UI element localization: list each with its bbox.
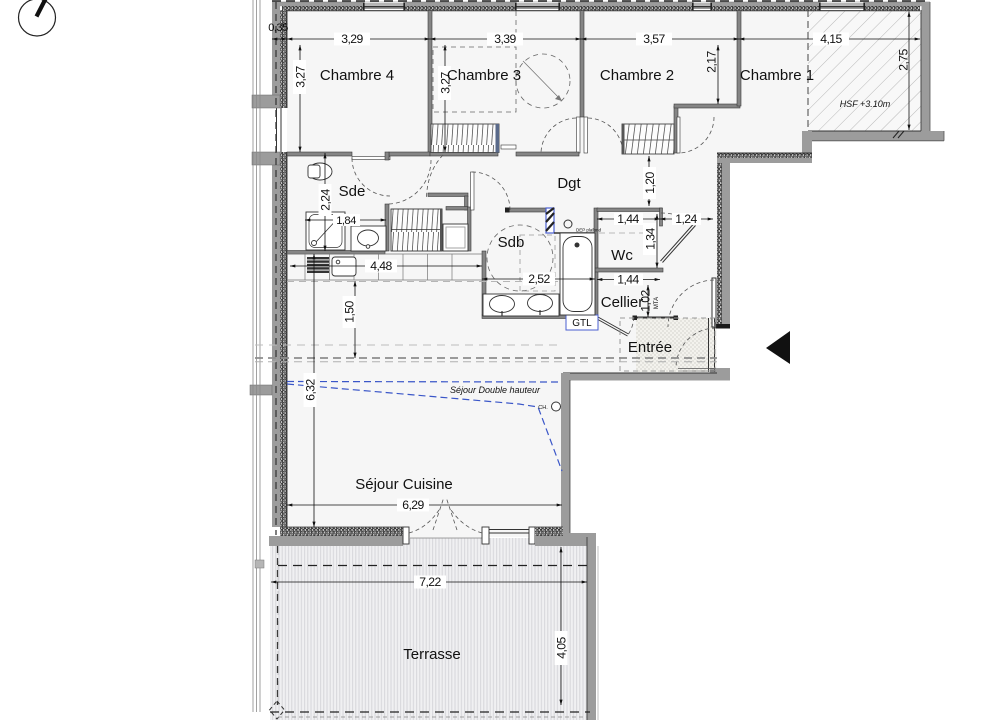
svg-text:4,15: 4,15 — [820, 32, 842, 46]
svg-text:Sde: Sde — [339, 183, 366, 200]
svg-text:Sdb: Sdb — [498, 234, 525, 251]
svg-text:Chambre 2: Chambre 2 — [600, 67, 674, 84]
svg-text:4,05: 4,05 — [555, 636, 569, 658]
svg-text:1,50: 1,50 — [343, 300, 357, 322]
svg-text:Chambre 1: Chambre 1 — [740, 67, 814, 84]
svg-text:2,24: 2,24 — [319, 188, 333, 210]
svg-text:2,75: 2,75 — [897, 48, 911, 70]
svg-text:3,57: 3,57 — [643, 32, 665, 46]
svg-text:3,27: 3,27 — [294, 65, 308, 87]
svg-text:1,84: 1,84 — [336, 215, 356, 227]
svg-text:2,17: 2,17 — [705, 50, 719, 72]
svg-text:MTA: MTA — [654, 297, 660, 309]
svg-text:Wc: Wc — [611, 247, 633, 264]
svg-text:6,32: 6,32 — [304, 378, 318, 400]
svg-text:DEP plafond: DEP plafond — [576, 228, 602, 233]
svg-text:HSF +3.10m: HSF +3.10m — [840, 99, 891, 109]
svg-text:3,29: 3,29 — [341, 32, 363, 46]
svg-text:Chambre 3: Chambre 3 — [447, 67, 521, 84]
svg-text:2,52: 2,52 — [528, 272, 550, 286]
svg-text:6,29: 6,29 — [402, 498, 424, 512]
svg-text:Séjour Cuisine: Séjour Cuisine — [355, 476, 453, 493]
svg-text:1,20: 1,20 — [643, 171, 657, 193]
svg-text:CH.: CH. — [538, 405, 548, 411]
svg-text:Séjour Double hauteur: Séjour Double hauteur — [450, 385, 541, 395]
svg-text:7,22: 7,22 — [419, 575, 441, 589]
svg-text:1,24: 1,24 — [675, 212, 697, 226]
svg-text:3,39: 3,39 — [494, 32, 516, 46]
svg-text:Cellier: Cellier — [601, 294, 644, 311]
svg-text:0,35: 0,35 — [268, 22, 288, 34]
svg-text:1,44: 1,44 — [617, 212, 639, 226]
svg-text:Terrasse: Terrasse — [403, 646, 461, 663]
svg-text:Entrée: Entrée — [628, 339, 672, 356]
svg-text:4,48: 4,48 — [370, 259, 392, 273]
svg-text:1,34: 1,34 — [644, 227, 658, 249]
svg-text:Chambre 4: Chambre 4 — [320, 67, 394, 84]
svg-text:1,44: 1,44 — [617, 273, 639, 287]
svg-text:Dgt: Dgt — [557, 175, 581, 192]
svg-text:GTL: GTL — [572, 318, 592, 329]
